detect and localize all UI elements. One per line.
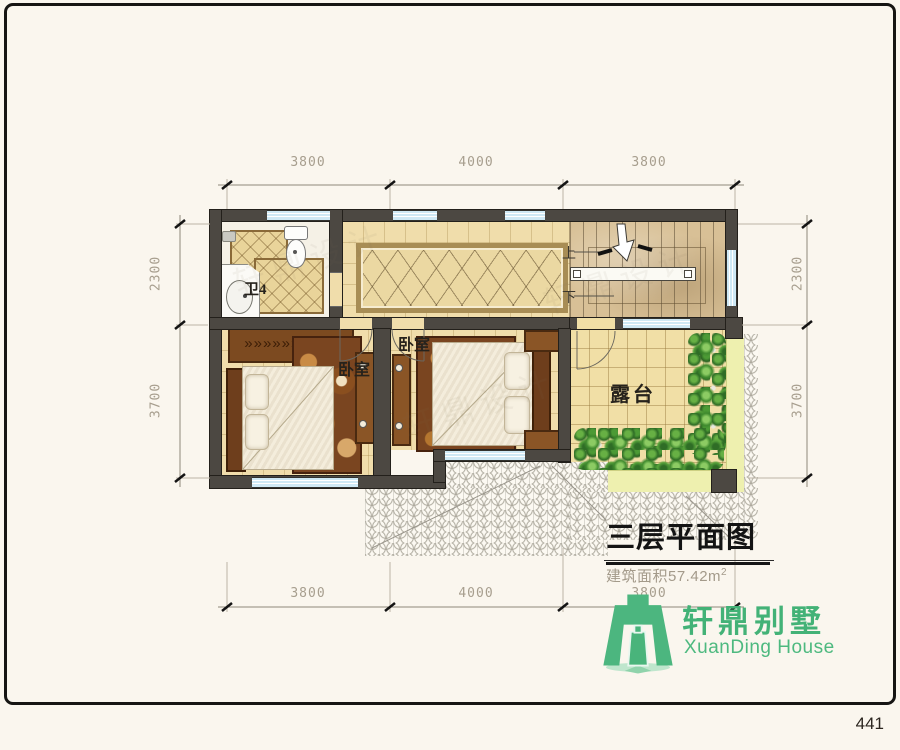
window-top-hall-1 <box>393 210 437 221</box>
window-top-bathroom <box>267 210 330 221</box>
dim-bottom-1: 3800 <box>278 586 338 601</box>
pillow <box>245 374 269 410</box>
nightstand <box>524 330 560 352</box>
page-number: 441 <box>840 714 884 734</box>
window-bedroom-middle-bottom <box>445 450 525 461</box>
bedroom-middle-label: 卧室 <box>398 331 430 355</box>
xuanding-logo-icon <box>598 584 678 676</box>
wall-exterior-left <box>210 210 221 488</box>
window-stair-terrace <box>623 318 690 329</box>
title-underline <box>604 560 774 561</box>
window-stairwell-right <box>726 250 737 306</box>
dim-right-1: 2300 <box>791 244 806 304</box>
dim-top-1: 3800 <box>278 155 338 170</box>
plan-title: 三层平面图 <box>606 514 770 565</box>
dim-top-2: 4000 <box>446 155 506 170</box>
wall-bedroom-divider <box>374 329 390 476</box>
building-area-text: 建筑面积57.42m <box>606 568 721 585</box>
window-top-hall-2 <box>505 210 545 221</box>
dim-bottom-2: 4000 <box>446 586 506 601</box>
dim-top-3: 3800 <box>619 155 679 170</box>
door-opening-bedroom-left <box>340 318 372 329</box>
dresser-knob <box>359 420 367 428</box>
dresser-knob <box>395 364 403 372</box>
dim-left-1: 2300 <box>149 244 164 304</box>
logo-name-en: XuanDing House <box>684 637 835 659</box>
bedroom-left-label: 卧室 <box>338 356 370 380</box>
building-area: 建筑面积57.42m2 <box>606 565 727 586</box>
dim-left-2: 3700 <box>149 371 164 431</box>
terrace-plants-bottom <box>574 428 724 470</box>
door-opening-bedroom-middle <box>392 318 424 329</box>
building-area-sup: 2 <box>721 567 727 578</box>
nightstand <box>524 430 560 452</box>
shower-fixture <box>222 231 236 242</box>
terrace-label: 露台 <box>610 378 656 407</box>
stair-up-label: 上 <box>562 243 576 263</box>
dim-right-2: 3700 <box>791 371 806 431</box>
door-opening-bathroom <box>330 272 342 307</box>
floor-plan-page: »»»»»»»»»» <box>0 0 900 750</box>
roof-tiles <box>744 334 758 540</box>
terrace-pillar-top <box>726 318 742 338</box>
door-opening-terrace <box>577 318 615 329</box>
terrace-pillar-bottom <box>712 470 736 492</box>
pillow <box>245 414 269 450</box>
logo-name-cn: 轩鼎别墅 <box>682 596 826 641</box>
wall-hall-bedroom-divider <box>210 318 570 329</box>
window-bedroom-left-bottom <box>252 477 358 488</box>
